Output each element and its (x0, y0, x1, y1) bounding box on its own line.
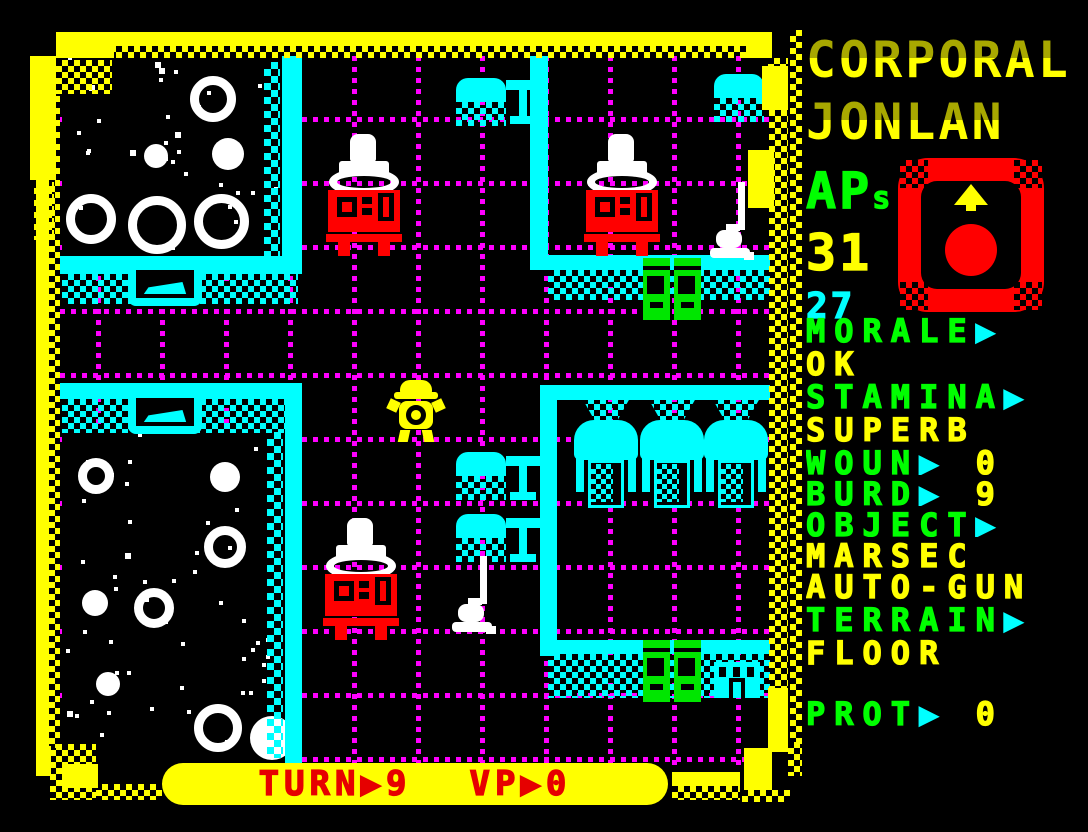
stat-row: MARSEC (806, 537, 1032, 568)
chair (456, 78, 506, 126)
unit-ball-icon (945, 224, 997, 276)
star (67, 711, 73, 717)
frame-part (790, 30, 802, 744)
moon (66, 194, 116, 244)
star (174, 70, 178, 74)
starfield-window (62, 428, 285, 765)
turn-value: 9 (386, 764, 411, 804)
moon (194, 704, 242, 752)
star (82, 499, 86, 503)
star (159, 68, 165, 74)
star (90, 700, 94, 704)
unit-rank: CORPORAL (806, 34, 1071, 86)
frame-part (56, 60, 112, 94)
star (128, 520, 132, 524)
ap-label: APs (806, 162, 890, 220)
star (172, 579, 176, 583)
star (184, 172, 188, 176)
seated-figure-at-console (584, 134, 660, 256)
stat-row: BURD▶ 9 (806, 475, 1032, 506)
star (254, 447, 258, 451)
frame-part (92, 32, 770, 46)
stat-text: 0 (947, 695, 1004, 728)
moon (210, 462, 240, 492)
frame-part (36, 96, 49, 748)
grid-line-vertical (480, 56, 485, 768)
star (130, 150, 136, 156)
frame-part (49, 96, 60, 748)
star (171, 160, 175, 164)
star (177, 150, 181, 154)
star (150, 707, 154, 711)
star (159, 78, 163, 82)
stat-text: 0 (947, 444, 1004, 475)
wall-dither (267, 432, 283, 758)
frame-part (96, 784, 162, 800)
star (262, 679, 266, 683)
stat-text: MORALE (806, 312, 976, 345)
stat-text: ▶ (1004, 378, 1032, 411)
star (100, 733, 104, 737)
facing-arrow-stem (966, 204, 976, 211)
chair (456, 452, 506, 500)
stat-text: MARSEC (806, 537, 976, 568)
star (241, 691, 245, 695)
stat-text: ▶ (919, 475, 947, 506)
stat-row: OK (806, 345, 1032, 378)
stat-row: TERRAIN▶ (806, 601, 1032, 634)
moon (212, 138, 244, 170)
seated-figure-at-console (326, 134, 402, 256)
star (235, 508, 239, 512)
moon (194, 194, 249, 249)
player-unit[interactable] (390, 380, 442, 442)
vp-arrow-icon: ▶ (520, 764, 545, 804)
star (242, 619, 246, 623)
vp-label: VP (469, 764, 520, 804)
star (155, 62, 161, 68)
moon (190, 76, 236, 122)
frame-part (672, 786, 740, 800)
ap-value: 31 (806, 224, 872, 282)
facing-indicator (898, 158, 1044, 312)
star (125, 482, 129, 486)
map-viewport[interactable] (60, 56, 770, 768)
star (181, 642, 185, 646)
console-building (714, 662, 760, 698)
stat-row: OBJECT▶ (806, 506, 1032, 537)
wall (285, 383, 302, 765)
frame-part (92, 46, 770, 58)
star (180, 686, 184, 690)
stat-spacer (806, 667, 1032, 695)
vp-value: 0 (546, 764, 571, 804)
star (143, 580, 147, 584)
moon (78, 458, 114, 494)
double-door[interactable] (643, 640, 701, 702)
dither-patch (900, 282, 928, 310)
unit-name: JONLAN (806, 96, 1005, 148)
stat-row: PROT▶ 0 (806, 695, 1032, 728)
star (175, 132, 181, 138)
frame-part (62, 764, 98, 788)
stat-row: STAMINA▶ (806, 378, 1032, 411)
star (113, 575, 117, 579)
star (128, 460, 132, 464)
turn-label: TURN (259, 764, 361, 804)
bed (128, 262, 202, 306)
stat-text: ▶ (919, 695, 947, 728)
star (251, 648, 255, 652)
chair (456, 514, 506, 562)
moon (204, 526, 246, 568)
stat-text: SUPERB (806, 411, 976, 444)
moon (96, 672, 120, 696)
star (125, 553, 131, 559)
dither-patch (1014, 282, 1042, 310)
star (206, 521, 210, 525)
moon (144, 144, 168, 168)
star (81, 560, 85, 564)
star (219, 183, 223, 187)
stat-row: WOUN▶ 0 (806, 444, 1032, 475)
frame-part (742, 790, 790, 802)
side-table (506, 456, 540, 502)
storage-tank (574, 398, 638, 510)
stat-text: AUTO-GUN (806, 568, 1032, 601)
floor-lamp (452, 556, 498, 636)
star (75, 714, 79, 718)
star (77, 131, 81, 135)
star (109, 640, 113, 644)
stat-text: PROT (806, 695, 919, 728)
star (86, 151, 90, 155)
stat-text: TERRAIN (806, 601, 1004, 634)
wall-dither (264, 62, 280, 258)
frame-part (768, 688, 788, 752)
grid-line-horizontal (60, 373, 770, 378)
star (251, 191, 255, 195)
stat-text: OK (806, 345, 863, 378)
stat-text: STAMINA (806, 378, 1004, 411)
star (236, 191, 240, 195)
moon (82, 590, 108, 616)
stat-text: ▶ (919, 444, 947, 475)
frame-part (769, 104, 788, 690)
frame-part (36, 746, 51, 776)
bed (128, 390, 202, 434)
stat-text: ▶ (1004, 601, 1032, 634)
frame-part (56, 32, 114, 58)
star (258, 84, 262, 88)
star (195, 551, 199, 555)
unit-info-panel: CORPORAL JONLAN APs 31 27 MORALE▶OKSTAMI… (806, 0, 1088, 832)
stat-text: ▶ (976, 312, 1004, 345)
chair (714, 74, 764, 122)
star (166, 115, 170, 119)
stat-row: MORALE▶ (806, 312, 1032, 345)
stat-text: OBJECT (806, 506, 976, 537)
dither-patch (1014, 160, 1042, 188)
storage-tank (640, 398, 704, 510)
storage-tank (704, 398, 768, 510)
status-bar: TURN▶9 VP▶0 (162, 763, 668, 805)
star (219, 601, 223, 605)
star (164, 141, 168, 145)
seated-figure-at-console (323, 518, 399, 640)
star (187, 710, 191, 714)
star (114, 587, 118, 591)
stat-text: 9 (947, 475, 1004, 506)
star (127, 671, 131, 675)
star (193, 570, 197, 574)
stat-text: FLOOR (806, 634, 947, 667)
star (83, 630, 87, 634)
stat-text: BURD (806, 475, 919, 506)
frame-part (746, 32, 772, 58)
side-table (506, 80, 540, 126)
stat-text: ▶ (976, 506, 1004, 537)
side-table (506, 518, 540, 564)
star (97, 119, 101, 123)
game-screen: TURN▶9 VP▶0 CORPORAL JONLAN APs 31 27 MO… (0, 0, 1088, 832)
stats-list: MORALE▶OKSTAMINA▶SUPERBWOUN▶ 0BURD▶ 9OBJ… (806, 312, 1032, 728)
star (249, 691, 253, 695)
moon (128, 196, 186, 254)
stat-row: FLOOR (806, 634, 1032, 667)
star (107, 711, 111, 715)
facing-up-arrow-icon (954, 184, 988, 205)
stat-row: AUTO-GUN (806, 568, 1032, 601)
star (256, 641, 260, 645)
stat-text: WOUN (806, 444, 919, 475)
stat-row: SUPERB (806, 411, 1032, 444)
wall (282, 56, 302, 272)
star (242, 657, 246, 661)
moon (134, 588, 174, 628)
star (66, 649, 70, 653)
frame-part (744, 748, 772, 790)
dither-patch (900, 160, 928, 188)
star (262, 663, 266, 667)
turn-arrow-icon: ▶ (361, 764, 386, 804)
wall (540, 398, 557, 656)
double-door[interactable] (643, 258, 701, 320)
frame-part (672, 772, 740, 786)
frame-part (788, 742, 802, 776)
